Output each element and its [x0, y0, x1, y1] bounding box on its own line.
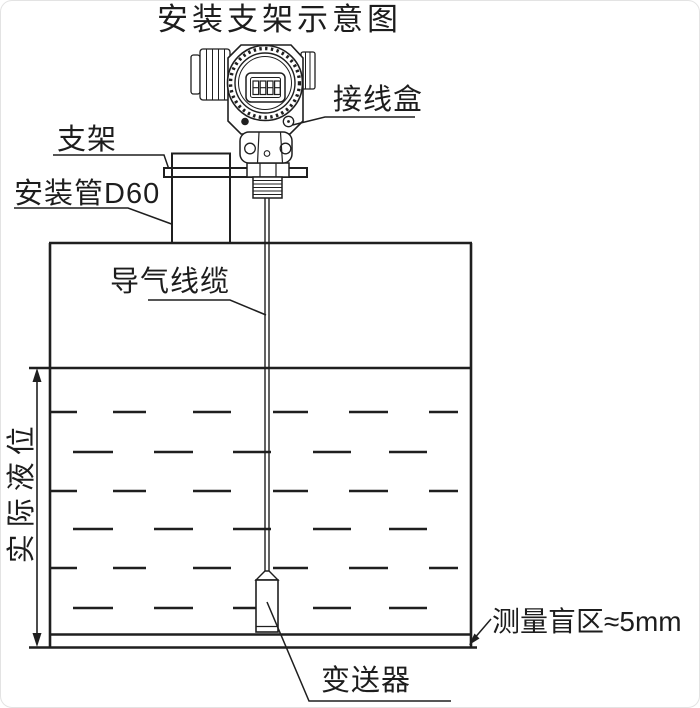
probe-body [256, 571, 278, 632]
tank-outline [29, 243, 477, 648]
transmitter-label: 变送器 [321, 666, 411, 696]
actual-level-label: 实际液位 [7, 421, 37, 563]
bracket-leader [53, 155, 169, 168]
mounting-pipe [171, 154, 231, 244]
mounting-pipe-label: 安装管D60 [14, 179, 160, 209]
air-cable-leader [148, 300, 266, 315]
corner-screw-center [287, 120, 290, 123]
transmitter-head [191, 45, 315, 163]
cable-lines [265, 198, 269, 572]
diagram-canvas: 安装支架示意图 接线盒 支架 安装管D60 导气线缆 实际液位 测量盲区≈5mm… [0, 0, 700, 708]
junction-box-label: 接线盒 [333, 85, 423, 115]
blind-zone-label: 测量盲区≈5mm [492, 607, 682, 636]
process-connection [247, 163, 289, 198]
liquid-dashes [49, 412, 458, 608]
diagram-title: 安装支架示意图 [157, 4, 402, 37]
ground-screw [241, 118, 249, 126]
air-cable-label: 导气线缆 [110, 267, 230, 297]
bracket-label: 支架 [57, 125, 117, 155]
junction-box-leader [293, 117, 416, 125]
cable-gland [191, 49, 230, 100]
mounting-yoke [240, 132, 292, 163]
mounting-pipe-leader [14, 208, 172, 224]
lcd-display [246, 73, 285, 102]
